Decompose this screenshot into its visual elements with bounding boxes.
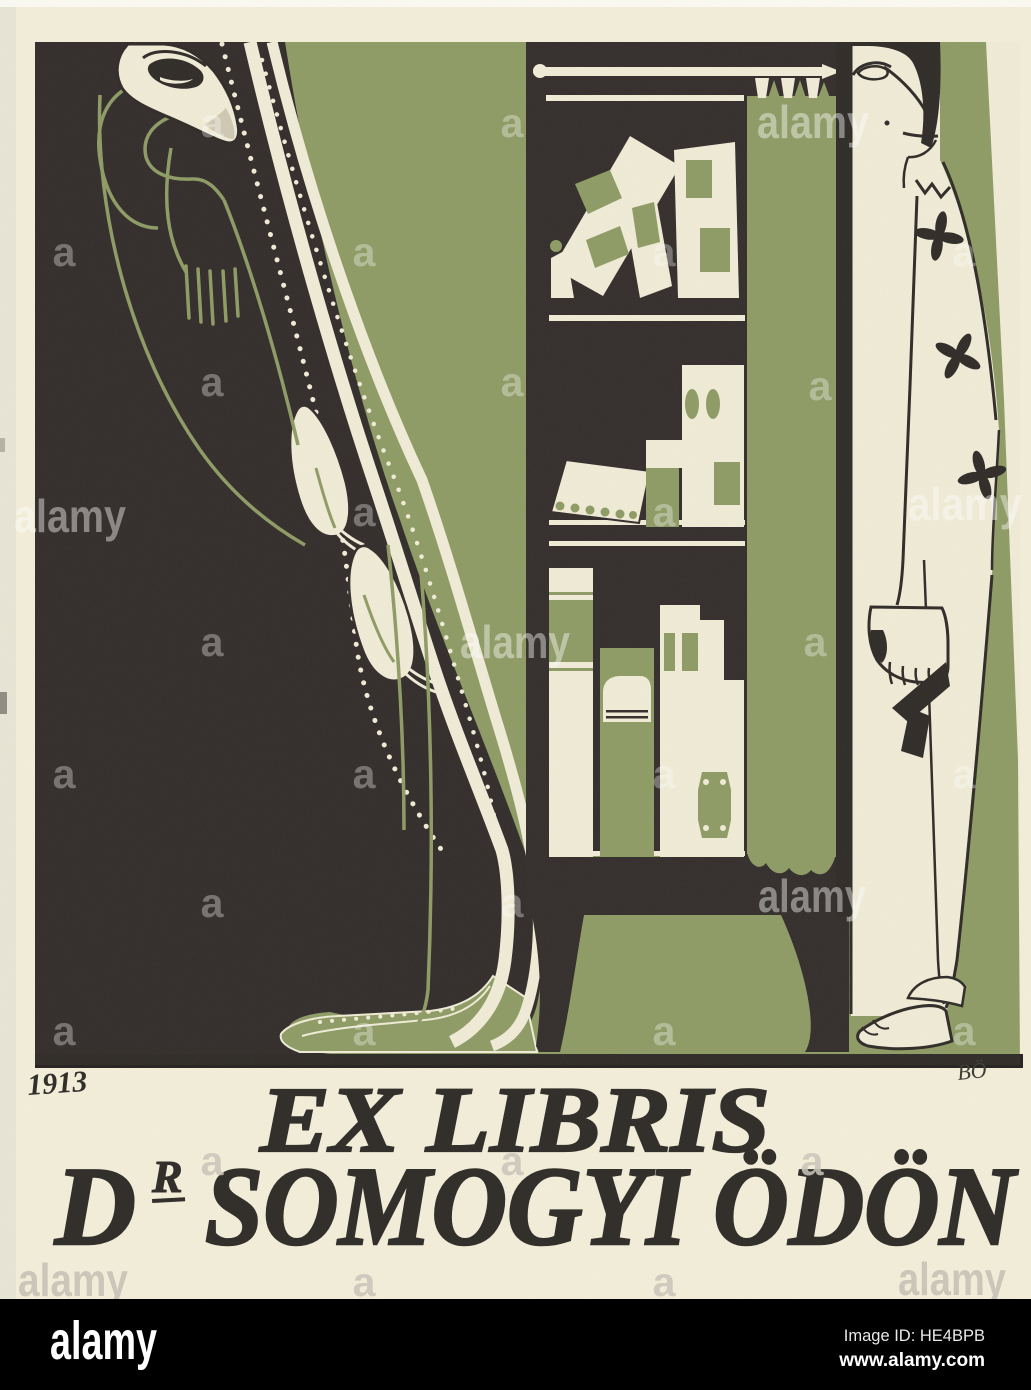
svg-text:a: a	[653, 229, 677, 275]
svg-text:alamy: alamy	[18, 1254, 128, 1306]
svg-text:alamy: alamy	[14, 490, 126, 542]
svg-text:www.alamy.com: www.alamy.com	[838, 1350, 985, 1371]
svg-text:a: a	[501, 100, 525, 146]
svg-text:a: a	[201, 1138, 225, 1184]
svg-text:a: a	[653, 489, 677, 535]
svg-text:a: a	[953, 1008, 977, 1054]
svg-text:a: a	[53, 229, 77, 275]
svg-text:Image ID: HE4BPB: Image ID: HE4BPB	[844, 1327, 985, 1345]
svg-text:a: a	[653, 1008, 677, 1054]
svg-text:a: a	[953, 751, 977, 797]
svg-text:alamy: alamy	[50, 1311, 157, 1371]
svg-text:a: a	[353, 1008, 377, 1054]
svg-text:a: a	[653, 751, 677, 797]
svg-text:a: a	[809, 363, 833, 409]
svg-text:a: a	[201, 100, 225, 146]
svg-text:a: a	[53, 751, 77, 797]
svg-text:alamy: alamy	[460, 616, 570, 668]
svg-text:a: a	[353, 489, 377, 535]
svg-text:a: a	[353, 1259, 377, 1305]
svg-text:a: a	[804, 619, 828, 665]
svg-text:a: a	[53, 1008, 77, 1054]
svg-text:a: a	[653, 1259, 677, 1305]
svg-text:a: a	[501, 1138, 525, 1184]
svg-text:a: a	[201, 619, 225, 665]
svg-text:a: a	[501, 880, 525, 926]
svg-text:alamy: alamy	[758, 870, 866, 922]
svg-text:a: a	[501, 359, 525, 405]
svg-text:a: a	[801, 1138, 825, 1184]
svg-text:alamy: alamy	[757, 96, 869, 148]
svg-text:a: a	[353, 751, 377, 797]
svg-text:a: a	[953, 229, 977, 275]
svg-text:a: a	[201, 359, 225, 405]
svg-text:alamy: alamy	[898, 1253, 1006, 1305]
svg-text:a: a	[201, 880, 225, 926]
svg-text:alamy: alamy	[908, 478, 1022, 530]
svg-text:a: a	[353, 229, 377, 275]
